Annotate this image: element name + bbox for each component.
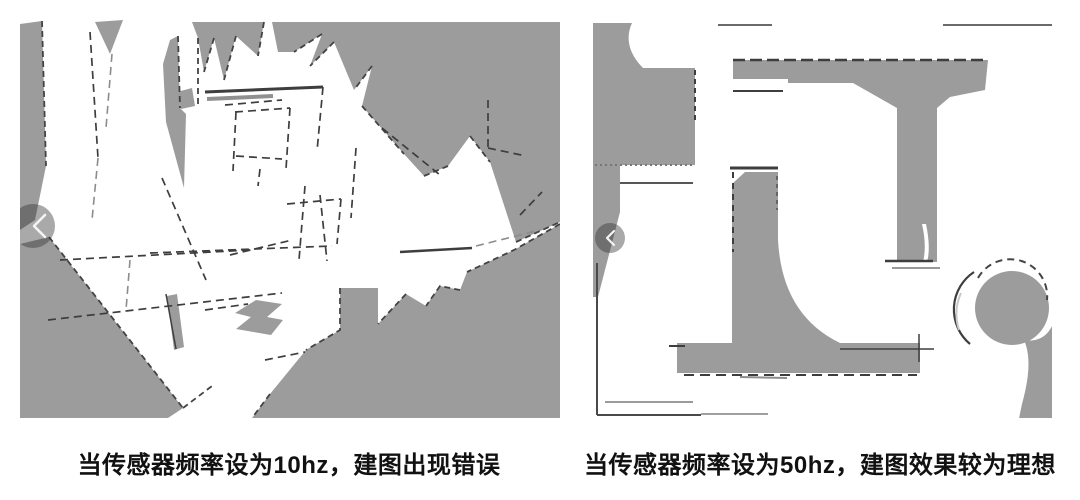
caption-10hz: 当传感器频率设为10hz，建图出现错误 (10, 445, 568, 480)
slam-map-10hz-figure (20, 10, 560, 418)
prev-image-button[interactable] (595, 223, 625, 253)
slam-map-50hz-image (593, 10, 1055, 418)
map-50hz-obstacle-regions (593, 23, 1052, 418)
figure-comparison-panel: 当传感器频率设为10hz，建图出现错误 当传感器频率设为50hz，建图效果较为理… (0, 0, 1080, 500)
slam-map-50hz-figure (593, 10, 1055, 418)
caption-50hz: 当传感器频率设为50hz，建图效果较为理想 (570, 445, 1070, 480)
map-10hz-unknown-regions (20, 20, 560, 418)
slam-map-10hz-image (20, 10, 560, 418)
